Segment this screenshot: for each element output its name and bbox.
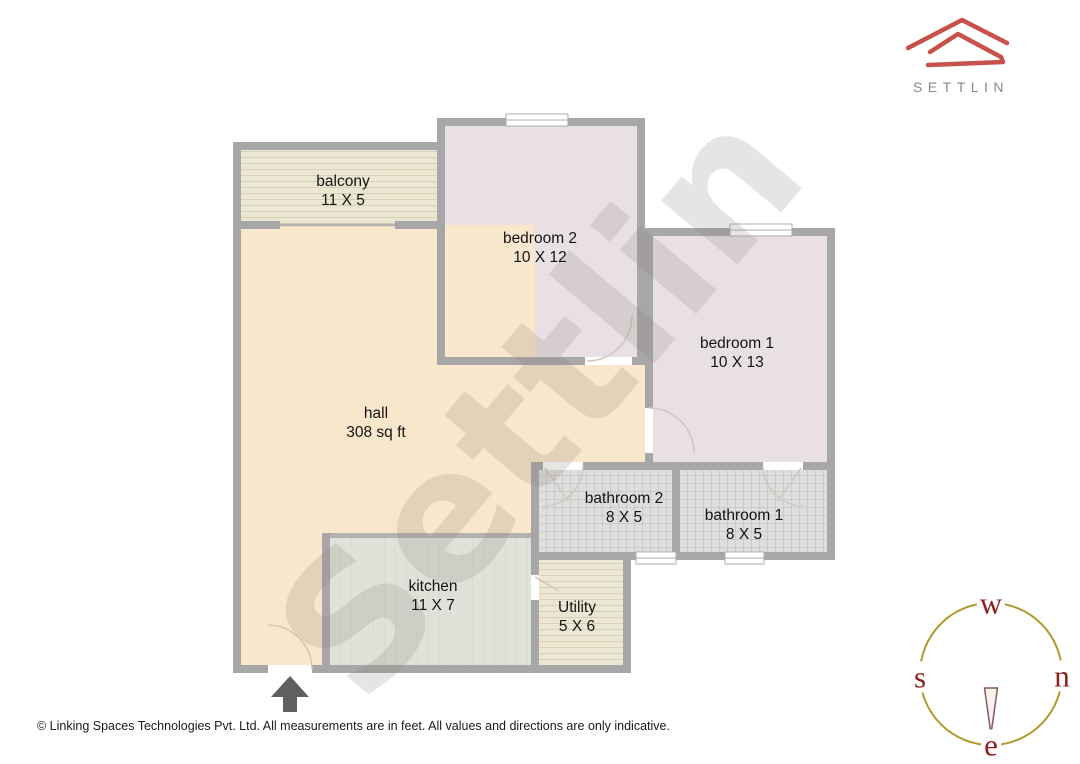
room-label-balcony: balcony 11 X 5: [316, 172, 369, 210]
room-label-bathroom1: bathroom 1 8 X 5: [705, 506, 783, 544]
room-label-bedroom1: bedroom 1 10 X 13: [700, 334, 774, 372]
plan-structure: [0, 0, 1080, 764]
bedroom1-door-arc: [649, 408, 694, 453]
logo-brand-text: SETTLIN: [913, 79, 1009, 95]
room-name: bedroom 1: [700, 334, 774, 353]
room-dims: 11 X 5: [316, 191, 369, 210]
footer-disclaimer: © Linking Spaces Technologies Pvt. Ltd. …: [37, 719, 670, 733]
logo-roof-icon: [908, 20, 1007, 65]
compass-rose: [920, 603, 1062, 745]
bedroom2-door-arc: [587, 316, 632, 361]
entrance-arrow-icon: [271, 676, 309, 712]
room-dims: 5 X 6: [558, 617, 596, 636]
compass-south-label: s: [911, 662, 929, 693]
room-dims: 308 sq ft: [346, 423, 405, 442]
room-label-kitchen: kitchen 11 X 7: [408, 577, 457, 615]
bathroom1-door-arc: [763, 466, 803, 506]
room-dims: 8 X 5: [705, 525, 783, 544]
bathroom2-door-arc: [543, 466, 583, 506]
bathroom2-door-leaf: [545, 468, 568, 501]
room-dims: 8 X 5: [585, 508, 663, 527]
room-label-bedroom2: bedroom 2 10 X 12: [503, 229, 577, 267]
floorplan-page: Settlin balcony 11 X 5 bedroom 2 10 X 12…: [0, 0, 1080, 764]
room-label-hall: hall 308 sq ft: [346, 404, 405, 442]
room-name: hall: [346, 404, 405, 423]
compass-north-label: n: [1051, 661, 1073, 692]
room-dims: 10 X 13: [700, 353, 774, 372]
room-dims: 11 X 7: [408, 596, 457, 615]
room-dims: 10 X 12: [503, 248, 577, 267]
room-label-utility: Utility 5 X 6: [558, 598, 596, 636]
bathroom1-door-leaf: [778, 468, 801, 501]
room-name: bathroom 2: [585, 489, 663, 508]
room-label-bathroom2: bathroom 2 8 X 5: [585, 489, 663, 527]
room-name: Utility: [558, 598, 596, 617]
compass-west-label: w: [977, 588, 1005, 619]
compass-east-label: e: [981, 730, 1001, 761]
room-name: kitchen: [408, 577, 457, 596]
room-name: balcony: [316, 172, 369, 191]
room-name: bathroom 1: [705, 506, 783, 525]
entrance-door-arc: [268, 625, 312, 669]
room-name: bedroom 2: [503, 229, 577, 248]
